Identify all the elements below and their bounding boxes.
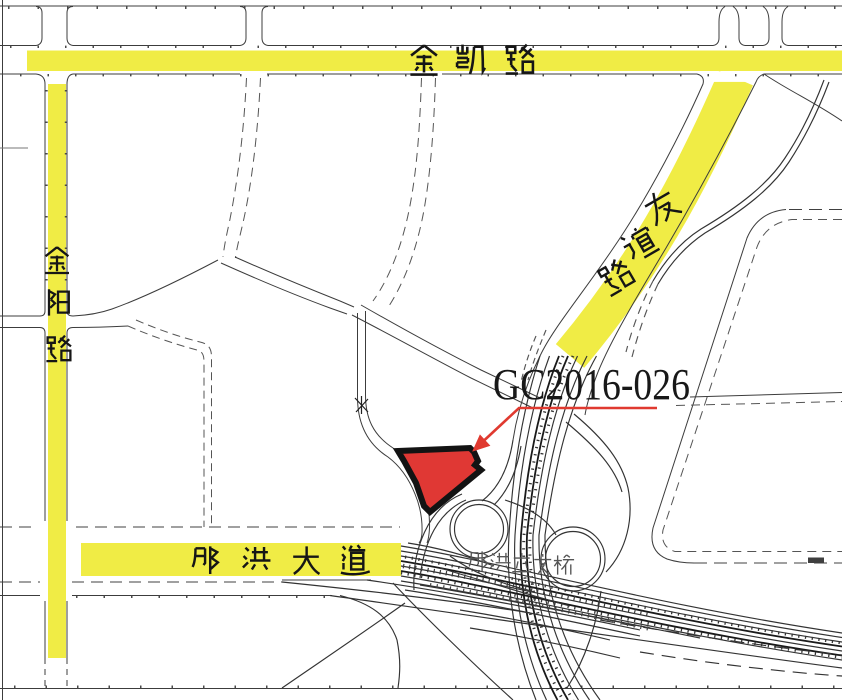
svg-text:GC2016-026: GC2016-026 — [493, 360, 690, 409]
